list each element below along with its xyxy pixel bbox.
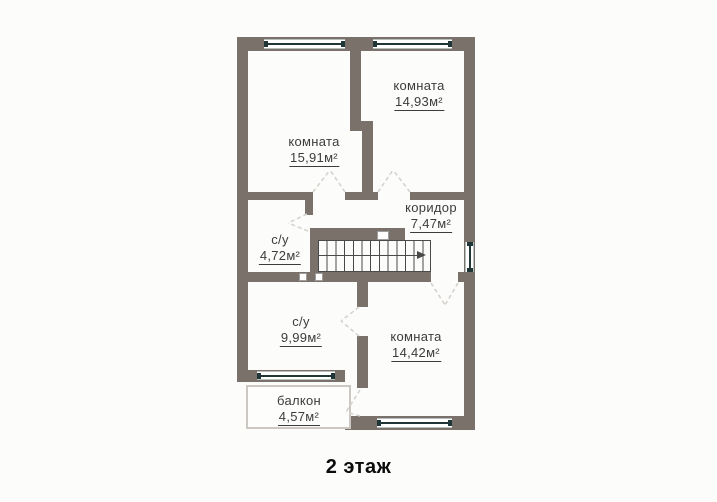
- room-area: 9,99м²: [280, 330, 322, 347]
- label-bathroom-large: с/у 9,99м²: [280, 314, 322, 347]
- label-bathroom-small: с/у 4,72м²: [259, 232, 301, 265]
- room-area: 4,72м²: [259, 248, 301, 265]
- room-name: балкон: [277, 393, 321, 408]
- room-name: с/у: [271, 232, 289, 247]
- label-balcony: балкон 4,57м²: [277, 393, 321, 426]
- room-area: 7,47м²: [410, 216, 452, 233]
- label-room-top-right: комната 14,93м²: [393, 78, 444, 111]
- label-corridor: коридор 7,47м²: [405, 200, 457, 233]
- door-swing-room-top-right: [378, 170, 410, 192]
- room-name: с/у: [292, 314, 310, 329]
- floorplan: комната 14,93м² комната 15,91м² коридор …: [0, 0, 717, 502]
- room-area: 4,57м²: [278, 409, 320, 426]
- door-swings: [0, 0, 717, 502]
- door-swing-bathroom-large: [341, 307, 359, 336]
- room-name: коридор: [405, 200, 457, 215]
- room-area: 15,91м²: [289, 150, 339, 167]
- door-swing-bathroom-small: [288, 214, 308, 231]
- room-area: 14,93м²: [394, 94, 444, 111]
- door-swing-balcony: [346, 390, 360, 416]
- floor-title: 2 этаж: [0, 456, 717, 479]
- room-name: комната: [288, 134, 339, 149]
- room-name: комната: [390, 329, 441, 344]
- door-swing-room-bottom-right: [431, 283, 458, 305]
- label-room-top-left: комната 15,91м²: [288, 134, 339, 167]
- room-area: 14,42м²: [391, 345, 441, 362]
- door-swing-room-top-left: [313, 170, 345, 192]
- room-name: комната: [393, 78, 444, 93]
- label-room-bottom-right: комната 14,42м²: [390, 329, 441, 362]
